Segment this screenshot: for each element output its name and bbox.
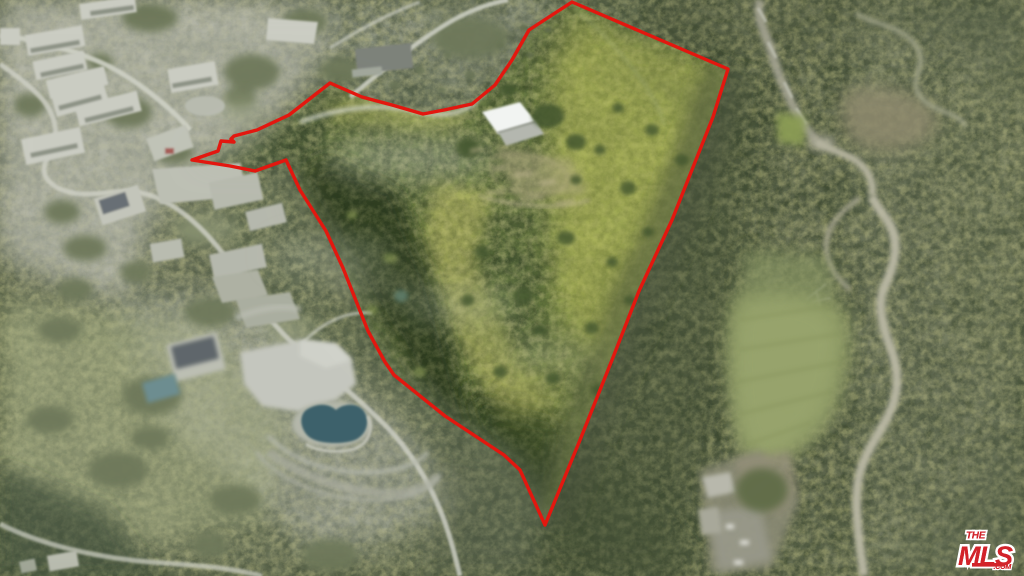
svg-text:.COM: .COM — [994, 564, 1012, 571]
svg-text:THE: THE — [966, 531, 986, 542]
